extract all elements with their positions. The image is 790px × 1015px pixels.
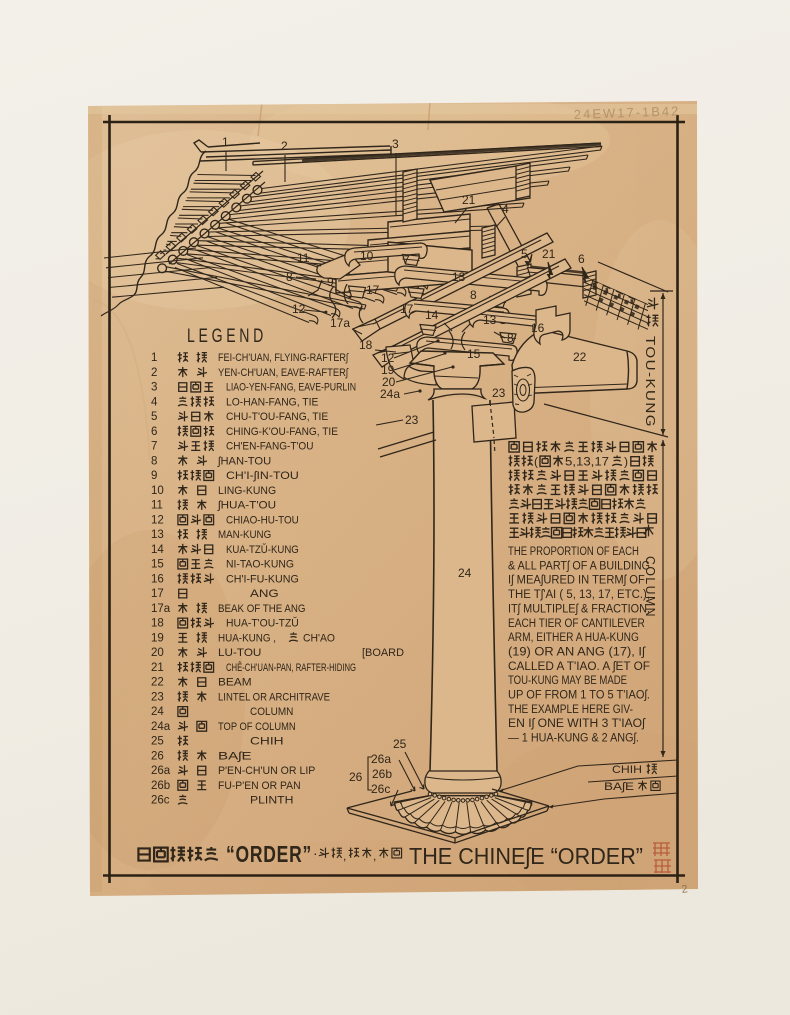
svg-text:2: 2: [281, 139, 288, 153]
svg-text:CHU-T'OU-FANG, TIE: CHU-T'OU-FANG, TIE: [226, 411, 328, 423]
svg-text:23: 23: [405, 413, 419, 427]
svg-text:17: 17: [400, 302, 414, 316]
svg-text:26c: 26c: [371, 782, 390, 796]
svg-text:6: 6: [151, 426, 157, 438]
svg-text:26c: 26c: [151, 795, 170, 807]
svg-text:BAʃE: BAʃE: [604, 781, 634, 793]
svg-text:— 1 HUA-KUNG & 2 ANGʃ.: — 1 HUA-KUNG & 2 ANGʃ.: [508, 733, 639, 745]
svg-text:ITʃ MULTIPLEʃ & FRACTION.: ITʃ MULTIPLEʃ & FRACTION.: [508, 603, 650, 615]
svg-text:17: 17: [151, 588, 164, 600]
svg-text:HUA-KUNG ,: HUA-KUNG ,: [218, 632, 276, 644]
svg-text:): ): [624, 454, 628, 468]
svg-text:P'EN-CH'UN OR LIP: P'EN-CH'UN OR LIP: [218, 765, 315, 777]
svg-text:26b: 26b: [372, 767, 392, 781]
svg-text:17: 17: [366, 283, 380, 297]
svg-text:COLUMN: COLUMN: [250, 706, 293, 718]
svg-text:THE EXAMPLE HERE GIV-: THE EXAMPLE HERE GIV-: [508, 704, 633, 716]
svg-text:YEN-CH'UAN, EAVE-RAFTERʃ: YEN-CH'UAN, EAVE-RAFTERʃ: [218, 367, 349, 379]
svg-text:BEAK OF THE ANG: BEAK OF THE ANG: [218, 603, 306, 615]
svg-text:MAN-KUNG: MAN-KUNG: [218, 529, 271, 541]
svg-text:CH'I-FU-KUNG: CH'I-FU-KUNG: [226, 573, 299, 585]
svg-text:22: 22: [573, 350, 587, 364]
svg-text:CALLED A T'IAO. A ʃET OF: CALLED A T'IAO. A ʃET OF: [508, 661, 650, 673]
svg-text:11: 11: [297, 251, 310, 265]
svg-text:18: 18: [151, 618, 164, 630]
svg-text:14: 14: [425, 308, 439, 322]
svg-text:Iʃ MEAʃURED IN TERMʃ OF: Iʃ MEAʃURED IN TERMʃ OF: [508, 575, 645, 587]
svg-text:24a: 24a: [151, 721, 171, 733]
svg-text:2: 2: [151, 367, 157, 379]
svg-text:13: 13: [151, 529, 164, 541]
svg-text:CH'I-ʃIN-TOU: CH'I-ʃIN-TOU: [226, 470, 299, 482]
svg-text:23: 23: [492, 386, 506, 400]
svg-text:LO-HAN-FANG, TIE: LO-HAN-FANG, TIE: [226, 396, 318, 408]
svg-text:26b: 26b: [151, 780, 170, 792]
svg-text:FU-P'EN OR PAN: FU-P'EN OR PAN: [218, 780, 301, 792]
svg-text:ANG: ANG: [250, 588, 279, 600]
svg-text:9: 9: [327, 275, 334, 289]
svg-text:UP OF FROM 1 TO 5 T'IAOʃ.: UP OF FROM 1 TO 5 T'IAOʃ.: [508, 690, 650, 702]
svg-text:8: 8: [286, 270, 293, 284]
svg-text:“ORDER”: “ORDER”: [226, 841, 312, 867]
svg-text:1: 1: [151, 352, 157, 364]
svg-text:3: 3: [151, 382, 157, 394]
svg-text:THE Tʃ'AI ( 5, 13, 17, ETC.),: THE Tʃ'AI ( 5, 13, 17, ETC.),: [508, 589, 650, 601]
svg-text:24: 24: [151, 706, 164, 718]
svg-text:13: 13: [483, 313, 497, 327]
svg-text:1: 1: [222, 135, 229, 149]
svg-text:21: 21: [151, 662, 164, 674]
svg-text:TOP OF COLUMN: TOP OF COLUMN: [218, 721, 296, 733]
svg-text:LING-KUNG: LING-KUNG: [218, 485, 276, 497]
svg-text:LINTEL OR ARCHITRAVE: LINTEL OR ARCHITRAVE: [218, 691, 330, 703]
svg-text:22: 22: [151, 677, 164, 689]
svg-text:FEI-CH'UAN, FLYING-RAFTERʃ: FEI-CH'UAN, FLYING-RAFTERʃ: [218, 352, 349, 364]
svg-text:15: 15: [467, 347, 481, 361]
svg-text:LEGEND: LEGEND: [187, 326, 267, 347]
svg-text:HUA-T'OU-TZŬ: HUA-T'OU-TZŬ: [226, 617, 299, 630]
svg-text:23: 23: [151, 691, 164, 703]
svg-text:BAʃE: BAʃE: [218, 750, 252, 762]
svg-text:15: 15: [151, 559, 164, 571]
svg-text:CHÊ-CH'UAN-PAN, RAFTER-HIDING: CHÊ-CH'UAN-PAN, RAFTER-HIDING: [226, 661, 356, 674]
svg-text:LIAO-YEN-FANG, EAVE-PURLIN: LIAO-YEN-FANG, EAVE-PURLIN: [226, 382, 356, 394]
svg-text:26a: 26a: [151, 765, 171, 777]
svg-text:ʃHAN-TOU: ʃHAN-TOU: [217, 455, 271, 467]
svg-text:8: 8: [470, 288, 477, 302]
svg-text:,: ,: [373, 849, 376, 863]
svg-text:CHIAO-HU-TOU: CHIAO-HU-TOU: [226, 514, 299, 526]
svg-text:ARM, EITHER A HUA-KUNG: ARM, EITHER A HUA-KUNG: [508, 632, 639, 644]
svg-text:13: 13: [452, 270, 466, 284]
svg-text:CHIH: CHIH: [612, 764, 642, 776]
svg-text:THE PROPORTION OF EACH: THE PROPORTION OF EACH: [508, 546, 639, 558]
svg-text:10: 10: [151, 485, 164, 497]
svg-text:8: 8: [151, 455, 157, 467]
svg-text:TOU-KUNG: TOU-KUNG: [643, 336, 657, 428]
svg-text:16: 16: [151, 573, 164, 585]
svg-text:19: 19: [151, 632, 164, 644]
svg-text:LU-TOU: LU-TOU: [218, 647, 261, 659]
svg-text:26a: 26a: [371, 752, 391, 766]
svg-text:17a: 17a: [151, 603, 171, 615]
svg-text:12: 12: [292, 302, 306, 316]
svg-text:5: 5: [521, 247, 528, 261]
svg-text:26: 26: [151, 750, 164, 762]
svg-text:18: 18: [359, 338, 373, 352]
svg-text:PLINTH: PLINTH: [250, 795, 293, 807]
svg-text:EN Iʃ ONE WITH 3 T'IAOʃ: EN Iʃ ONE WITH 3 T'IAOʃ: [508, 718, 646, 730]
svg-text:CHIH: CHIH: [250, 736, 284, 748]
svg-text:21: 21: [542, 247, 556, 261]
svg-text:4: 4: [502, 202, 509, 216]
svg-text:9: 9: [151, 470, 157, 482]
svg-text:5,13,17: 5,13,17: [565, 456, 609, 468]
svg-text:26: 26: [349, 770, 363, 784]
svg-text:5: 5: [151, 411, 157, 423]
svg-text:(19) OR AN ANG (17), Iʃ: (19) OR AN ANG (17), Iʃ: [508, 646, 646, 658]
svg-text:·: ·: [313, 845, 318, 861]
svg-text:21: 21: [462, 193, 476, 207]
svg-text:7: 7: [403, 253, 410, 267]
svg-text:7: 7: [151, 441, 157, 453]
svg-text:6: 6: [578, 252, 585, 266]
svg-text:(: (: [534, 454, 538, 468]
svg-text:KUA-TZŬ-KUNG: KUA-TZŬ-KUNG: [226, 543, 299, 556]
svg-text:THE CHINEʃE “ORDER”: THE CHINEʃE “ORDER”: [409, 843, 643, 869]
svg-text:TOU-KUNG MAY BE MADE: TOU-KUNG MAY BE MADE: [508, 675, 627, 687]
svg-text:EACH TIER OF CANTILEVER: EACH TIER OF CANTILEVER: [508, 618, 645, 630]
svg-text:10: 10: [360, 249, 374, 263]
svg-text:[BOARD: [BOARD: [362, 647, 404, 659]
svg-text:4: 4: [151, 396, 158, 408]
svg-text:CHING-K'OU-FANG, TIE: CHING-K'OU-FANG, TIE: [226, 426, 338, 438]
svg-text:3: 3: [392, 137, 399, 151]
svg-text:CH'EN-FANG-T'OU: CH'EN-FANG-T'OU: [226, 441, 314, 453]
svg-text:24a: 24a: [380, 387, 400, 401]
svg-text:,: ,: [343, 849, 346, 863]
svg-text:BEAM: BEAM: [218, 677, 252, 689]
svg-text:24: 24: [458, 566, 472, 580]
svg-text:CH'AO: CH'AO: [303, 632, 335, 644]
svg-text:NI-TAO-KUNG: NI-TAO-KUNG: [226, 559, 294, 571]
svg-text:17a: 17a: [330, 316, 350, 330]
svg-text:25: 25: [151, 736, 164, 748]
svg-text:12: 12: [151, 514, 164, 526]
svg-text:14: 14: [151, 544, 164, 556]
svg-text:8: 8: [507, 331, 514, 345]
svg-text:25: 25: [393, 737, 407, 751]
svg-text:16: 16: [531, 321, 545, 335]
svg-text:11: 11: [151, 500, 163, 512]
svg-text:& ALL PARTʃ OF A BUILDING: & ALL PARTʃ OF A BUILDING: [508, 560, 650, 572]
svg-text:ʃHUA-T'OU: ʃHUA-T'OU: [217, 500, 276, 512]
svg-text:20: 20: [151, 647, 164, 659]
